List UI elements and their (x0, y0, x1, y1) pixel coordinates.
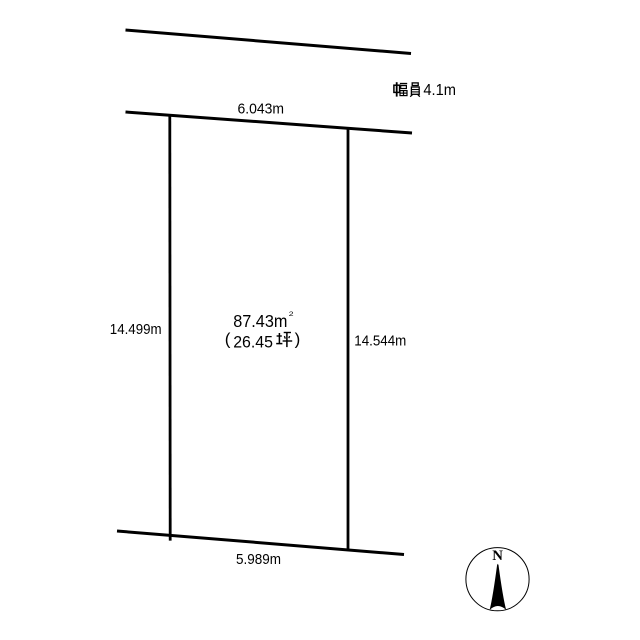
svg-text:): ) (295, 330, 301, 349)
svg-text:6.043m: 6.043m (238, 102, 285, 118)
svg-text:26.45: 26.45 (233, 333, 273, 351)
svg-text:5.989m: 5.989m (236, 552, 281, 568)
svg-text:(: ( (225, 330, 231, 349)
svg-text:2: 2 (289, 311, 294, 318)
svg-text:14.544m: 14.544m (354, 334, 406, 350)
svg-text:87.43m: 87.43m (233, 311, 287, 331)
svg-text:4.1m: 4.1m (423, 82, 456, 99)
svg-text:14.499m: 14.499m (110, 322, 162, 338)
svg-text:N: N (492, 548, 503, 564)
